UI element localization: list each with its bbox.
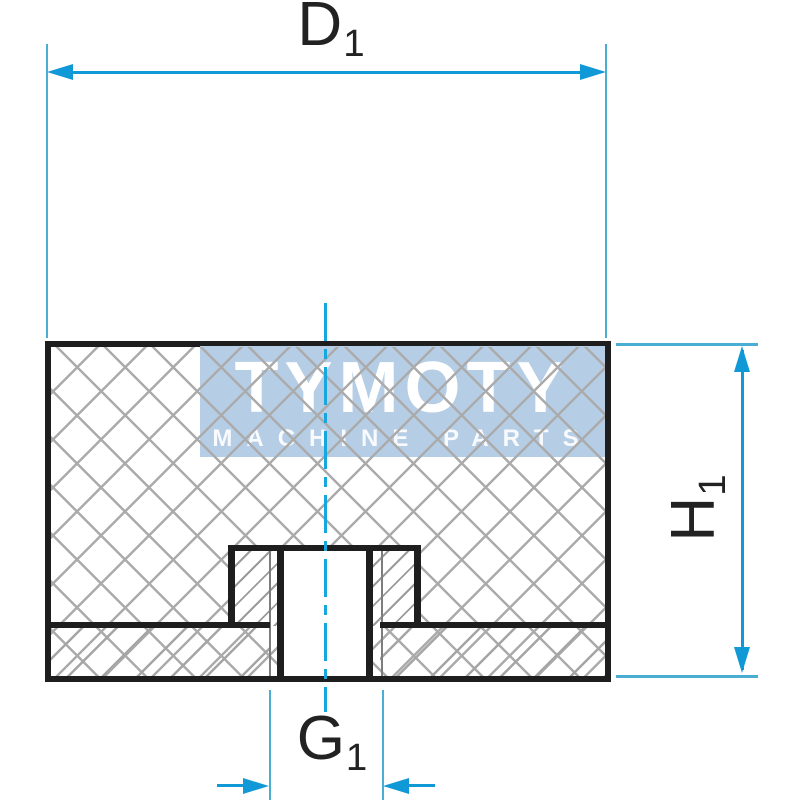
vertical-centerline — [324, 303, 327, 712]
g1-label-sub: 1 — [346, 736, 367, 779]
d1-label-sub: 1 — [343, 22, 364, 65]
base-plate-hatch-right — [380, 626, 605, 676]
thread-major-line-left — [269, 547, 271, 676]
part-body-outline: TYMOTY MACHINE PARTS — [45, 341, 611, 682]
d1-arrow-right-icon — [580, 64, 606, 80]
g1-arrow-inward-left-icon — [243, 778, 269, 794]
base-plate-top-line-left — [51, 622, 270, 628]
g1-label: G1 — [282, 706, 382, 781]
d1-extension-line-right — [605, 44, 607, 338]
d1-dimension-line — [60, 71, 580, 74]
bushing-section-hatch-right — [373, 548, 415, 626]
base-plate-hatch-left — [51, 626, 270, 676]
g1-dimension-tail-right — [407, 784, 435, 787]
d1-label-base: D — [297, 0, 342, 59]
h1-arrow-down-icon — [734, 647, 750, 673]
h1-extension-line-bottom — [616, 675, 758, 678]
g1-dimension-tail-left — [217, 784, 245, 787]
g1-label-base: G — [297, 704, 345, 773]
h1-label: H1 — [634, 448, 754, 568]
g1-arrow-inward-right-icon — [383, 778, 409, 794]
h1-label-text: H1 — [661, 474, 726, 541]
d1-arrow-left-icon — [47, 64, 73, 80]
d1-label: D1 — [286, 0, 376, 64]
h1-arrow-up-icon — [734, 346, 750, 372]
bore-wall-left — [277, 545, 284, 676]
thread-major-line-right — [381, 547, 383, 676]
bore-wall-right — [366, 545, 373, 676]
g1-extension-line-left — [269, 690, 271, 800]
bushing-outer-wall-left — [228, 545, 235, 628]
bushing-outer-wall-right — [414, 545, 421, 628]
technical-drawing-canvas: TYMOTY MACHINE PARTS D1 H1 — [0, 0, 800, 800]
d1-extension-line-left — [46, 44, 48, 338]
